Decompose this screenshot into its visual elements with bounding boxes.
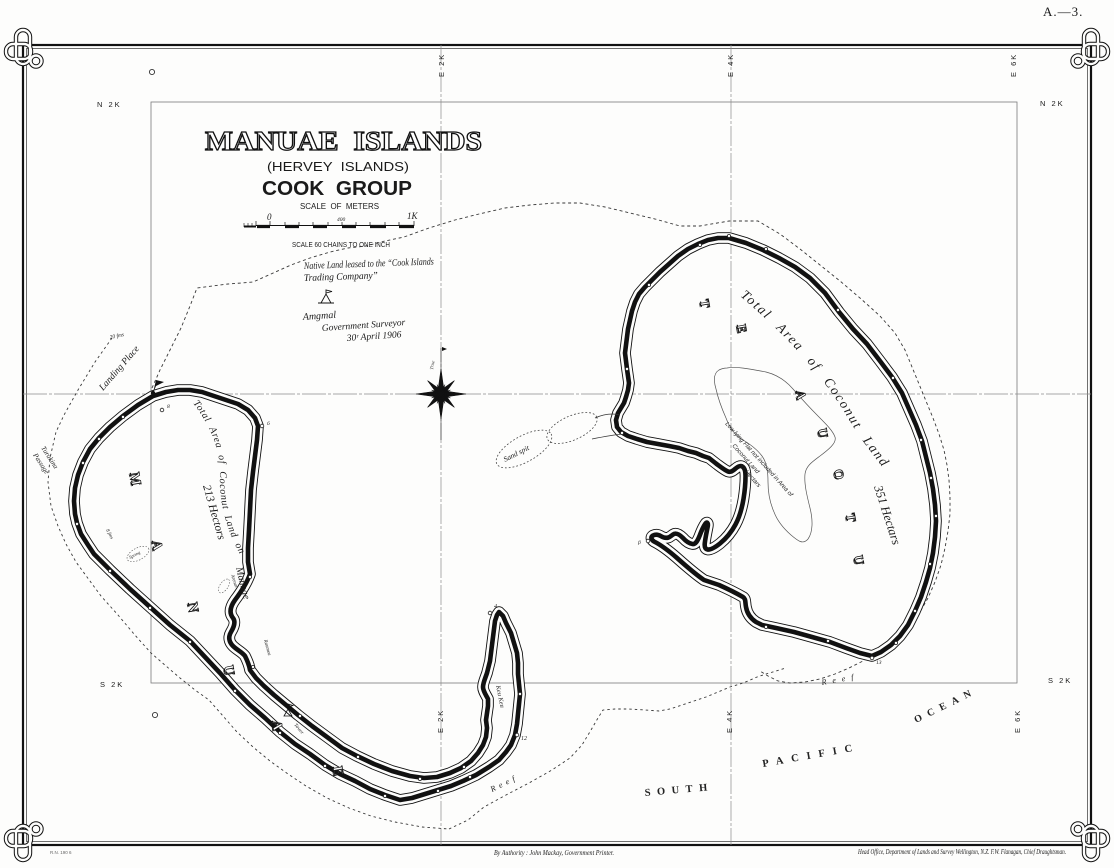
svg-text:E 2K: E 2K <box>437 53 446 77</box>
svg-text:0: 0 <box>267 212 272 222</box>
svg-text:E 6K: E 6K <box>1009 53 1018 77</box>
svg-text:E 6K: E 6K <box>1013 709 1022 733</box>
svg-text:E 4K: E 4K <box>726 53 735 77</box>
svg-text:4: 4 <box>494 603 497 610</box>
svg-text:By Authority : John Mackay, G: By Authority : John Mackay, Government P… <box>494 848 614 857</box>
svg-text:12: 12 <box>521 736 527 742</box>
svg-text:400: 400 <box>337 216 346 223</box>
svg-text:R.N. 190 6: R.N. 190 6 <box>50 850 72 855</box>
svg-text:SCALE 60 CHAINS TO ONE INCH: SCALE 60 CHAINS TO ONE INCH <box>292 240 390 249</box>
svg-text:S 2K: S 2K <box>1048 676 1072 685</box>
svg-text:Head Office, Department of Lan: Head Office, Department of Lands and Sur… <box>857 848 1066 856</box>
svg-text:MANUAE ISLANDS: MANUAE ISLANDS <box>205 126 482 156</box>
svg-text:M: M <box>126 471 143 487</box>
svg-text:6: 6 <box>267 421 270 427</box>
svg-text:N 2K: N 2K <box>97 100 122 109</box>
svg-text:8: 8 <box>167 404 170 410</box>
svg-text:SCALE OF METERS: SCALE OF METERS <box>300 202 379 211</box>
svg-text:1K: 1K <box>407 211 419 221</box>
svg-text:S 2K: S 2K <box>100 680 124 689</box>
svg-text:(HERVEY ISLANDS): (HERVEY ISLANDS) <box>267 160 409 174</box>
svg-text:A.—3.: A.—3. <box>1043 4 1083 19</box>
svg-text:β: β <box>637 540 641 546</box>
svg-text:E 2K: E 2K <box>436 709 445 733</box>
svg-text:13: 13 <box>876 660 882 666</box>
svg-text:COOK GROUP: COOK GROUP <box>262 178 412 200</box>
svg-text:N 2K: N 2K <box>1040 99 1065 108</box>
svg-text:E 4K: E 4K <box>725 709 734 733</box>
